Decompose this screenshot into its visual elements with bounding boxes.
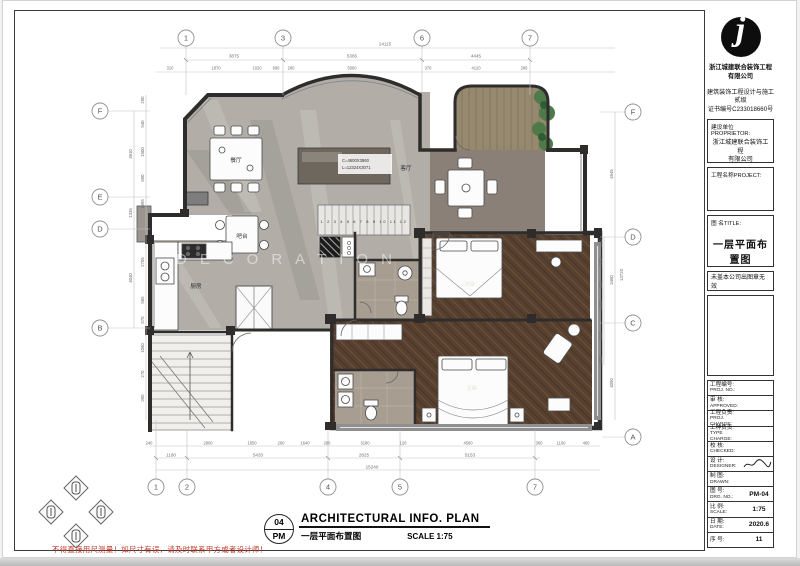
watermark: AN DECORATION [112, 251, 405, 268]
proprietor-value: 浙江城建联合装饰工程 有限公司 [711, 139, 770, 163]
svg-text:810: 810 [598, 281, 603, 289]
row-checked: 校 核:CHECKED: [708, 442, 773, 457]
svg-text:1640: 1640 [300, 441, 310, 446]
svg-text:280: 280 [521, 66, 529, 71]
svg-text:4: 4 [326, 483, 330, 492]
svg-text:120: 120 [400, 441, 408, 446]
svg-text:260: 260 [278, 441, 286, 446]
svg-text:3875: 3875 [229, 54, 240, 59]
svg-text:5060: 5060 [347, 66, 357, 71]
svg-text:3460: 3460 [609, 275, 614, 285]
svg-text:14115: 14115 [379, 42, 392, 47]
svg-text:460: 460 [598, 356, 603, 364]
svg-text:690: 690 [273, 66, 281, 71]
svg-text:15240: 15240 [366, 465, 379, 470]
svg-text:4500: 4500 [463, 441, 473, 446]
svg-text:7: 7 [533, 483, 537, 492]
svg-text:F: F [98, 107, 103, 116]
svg-text:1020: 1020 [252, 66, 262, 71]
svg-text:565: 565 [140, 296, 145, 304]
svg-text:L=12324X3071: L=12324X3071 [342, 165, 371, 170]
svg-text:310: 310 [167, 66, 175, 71]
company-name: 浙江城建联合装饰工程 有限公司 [705, 64, 776, 82]
company-logo: j [705, 10, 776, 64]
svg-text:D: D [630, 233, 636, 242]
svg-text:1870: 1870 [211, 66, 221, 71]
svg-text:1160: 1160 [166, 453, 176, 458]
svg-text:2825: 2825 [359, 453, 370, 458]
svg-text:4945: 4945 [609, 169, 614, 179]
figure-title-en: ARCHITECTURAL INFO. PLAN [299, 510, 490, 528]
svg-text:4090: 4090 [609, 378, 614, 388]
label-dining: 餐厅 [230, 156, 242, 164]
drawing-sheet: 1 2 3 4 5 6 7 8 9 10 11 12 [0, 0, 800, 566]
project-box: 工程名称PROJECT: [707, 167, 774, 211]
svg-text:460: 460 [583, 441, 591, 446]
svg-text:5365: 5365 [347, 54, 358, 59]
sheet-bottom-shadow [0, 558, 800, 566]
drawing-title: 一层平面布置图 [711, 236, 770, 266]
svg-text:690: 690 [140, 174, 145, 182]
svg-text:360: 360 [536, 441, 544, 446]
proprietor-box: 建设单位PROPRIETOR: 浙江城建联合装饰工程 有限公司 [707, 119, 774, 163]
figure-title: 04 PM ARCHITECTURAL INFO. PLAN 一层平面布置图 S… [264, 510, 490, 544]
svg-text:1060: 1060 [140, 343, 145, 353]
label-kitchen: 厨房 [190, 282, 202, 290]
measurement-warning: 不得直接用尺测量！如尺寸有误，请及时联系甲方或者设计师！ [52, 544, 267, 555]
svg-text:1160: 1160 [557, 441, 567, 446]
svg-text:F: F [631, 108, 636, 117]
svg-text:13720: 13720 [619, 268, 624, 281]
svg-text:C: C [630, 319, 636, 328]
svg-text:4120: 4120 [471, 66, 481, 71]
svg-text:3: 3 [281, 34, 285, 43]
svg-text:847: 847 [598, 331, 603, 339]
designer-signature [742, 458, 772, 471]
svg-text:7: 7 [528, 34, 532, 43]
svg-text:1500: 1500 [140, 147, 145, 157]
elevator [236, 286, 272, 330]
svg-text:C=4600X3960: C=4600X3960 [342, 158, 370, 163]
row-drg-no: 图 号:DRG. NO.: PM-04 [708, 487, 773, 502]
svg-text:5433: 5433 [253, 453, 264, 458]
svg-text:870: 870 [598, 258, 603, 266]
logo-icon: j [721, 17, 761, 57]
label-living: 客厅 [400, 164, 412, 172]
empty-box [707, 295, 774, 376]
row-drawn: 制 图:DRAWN: [708, 472, 773, 487]
svg-text:940: 940 [140, 120, 145, 128]
svg-text:2705: 2705 [140, 257, 145, 267]
figure-scale: SCALE 1:75 [407, 532, 452, 541]
figure-title-cn: 一层平面布置图 [301, 530, 361, 542]
title-block: j 浙江城建联合装饰工程 有限公司 建筑装饰工程设计与施工 贰级 证书编号C23… [704, 10, 776, 551]
row-scale: 比 例:SCALE: 1:75 [708, 502, 773, 517]
svg-text:290: 290 [140, 96, 145, 104]
svg-text:1335: 1335 [128, 208, 133, 218]
svg-text:370: 370 [425, 66, 433, 71]
row-serial: 序 号: 11 [708, 533, 773, 548]
svg-text:1503: 1503 [598, 300, 603, 310]
row-proj-no: 工程编号:PROJ. NO.: [708, 381, 773, 396]
svg-text:5: 5 [398, 483, 402, 492]
svg-text:1395: 1395 [140, 199, 145, 209]
label-master: 主卧 [466, 384, 478, 392]
seal-note-box: 未盖本公司出图章无效 [707, 271, 774, 291]
svg-text:280: 280 [324, 441, 332, 446]
svg-text:280: 280 [288, 66, 296, 71]
svg-text:B: B [97, 324, 102, 333]
svg-text:1: 1 [154, 483, 158, 492]
public-stair [150, 335, 232, 430]
living-note: C=4600X3960 L=12324X3071 [338, 154, 392, 174]
svg-text:1: 1 [184, 34, 188, 43]
label-bar: 吧台 [236, 232, 248, 240]
svg-text:6: 6 [420, 34, 424, 43]
stair-numbers: 1 2 3 4 5 6 7 8 9 10 11 12 [321, 219, 408, 224]
label-bedroom2: 次卧 [464, 280, 476, 288]
svg-text:D: D [97, 225, 103, 234]
svg-text:4445: 4445 [471, 54, 482, 59]
svg-text:4040: 4040 [128, 273, 133, 283]
row-date: 日 期:DATE: 2020.6 [708, 518, 773, 533]
svg-text:2: 2 [185, 483, 189, 492]
company-cert: 建筑装饰工程设计与施工 贰级 证书编号C233018660号 [705, 89, 776, 115]
floor-plan-canvas: 1 2 3 4 5 6 7 8 9 10 11 12 [10, 6, 700, 506]
svg-text:1850: 1850 [247, 441, 257, 446]
level-marker-cluster [30, 474, 122, 548]
row-designer: 设 计:DESIGNER: [708, 457, 773, 472]
svg-text:3610: 3610 [128, 149, 133, 159]
svg-text:A: A [630, 433, 635, 442]
row-type-charge: 工种负责:TYPE CHARGE: [708, 427, 773, 442]
svg-text:5153: 5153 [465, 453, 476, 458]
title-block-rows: 工程编号:PROJ. NO.: 审 核:APPROVED: 工程负责:PROJ.… [707, 380, 774, 548]
svg-text:270: 270 [140, 370, 145, 378]
svg-text:240: 240 [598, 239, 603, 247]
svg-text:240: 240 [146, 441, 154, 446]
svg-text:570: 570 [140, 316, 145, 324]
svg-text:2800: 2800 [203, 441, 213, 446]
drawing-title-box: 图 名TITLE: 一层平面布置图 [707, 215, 774, 267]
figure-title-text: ARCHITECTURAL INFO. PLAN 一层平面布置图 SCALE 1… [299, 510, 490, 542]
figure-number-icon: 04 PM [264, 514, 294, 544]
svg-text:390: 390 [140, 394, 145, 402]
svg-text:3180: 3180 [360, 441, 370, 446]
floor-plan-svg: 1 2 3 4 5 6 7 8 9 10 11 12 [10, 6, 700, 506]
svg-text:E: E [97, 193, 102, 202]
